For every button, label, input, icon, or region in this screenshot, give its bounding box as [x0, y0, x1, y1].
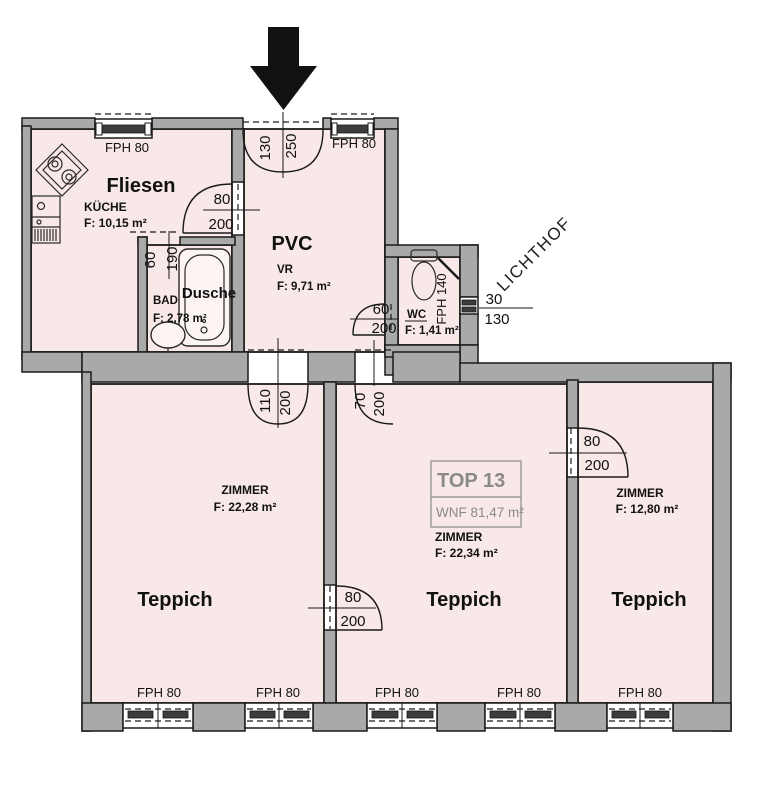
unit-number: TOP 13	[437, 470, 505, 492]
wall-bad-top-2	[180, 237, 235, 245]
vr-mid-door-dim-height: 200	[371, 391, 388, 416]
bottom-window-3	[367, 703, 437, 728]
lichthof-label: LICHTHOF	[493, 213, 575, 295]
window-radiator	[525, 711, 551, 718]
vr-left-door-dim-height: 200	[277, 390, 294, 415]
kueche-floor-label: Fliesen	[107, 175, 176, 197]
zimmer-right-floor: Teppich	[611, 589, 686, 611]
wall-bottom-pier-1	[82, 703, 123, 731]
window-radiator	[372, 711, 398, 718]
wc-name: WC	[407, 309, 426, 321]
wall-mid-right-2	[567, 477, 578, 703]
wc-window-bar	[462, 300, 476, 305]
kueche-window-cap	[96, 123, 102, 135]
wc-window-dim-width: 30	[486, 291, 503, 308]
entry-dim-height: 250	[283, 133, 300, 158]
vr-area: F: 9,71 m²	[277, 281, 331, 293]
vr-window-label: FPH 80	[332, 136, 376, 151]
kueche-window-label: FPH 80	[105, 140, 149, 155]
wall-bottom-pier-3	[313, 703, 367, 731]
wall-bottom-pier-6	[673, 703, 731, 731]
floorplan-canvas: TOP 13 WNF 81,47 m² FPH 80 FPH 80 Fliese…	[0, 0, 762, 790]
kueche-area: F: 10,15 m²	[84, 216, 147, 230]
wc-window-label: FPH 140	[434, 273, 449, 324]
wall-band-2	[308, 352, 355, 382]
zimmer-left-floor: Teppich	[137, 589, 212, 611]
wall-top-3	[323, 118, 331, 129]
left-mid-door-dim-height: 200	[340, 613, 365, 630]
floorplan-svg: TOP 13 WNF 81,47 m² FPH 80 FPH 80 Fliese…	[0, 0, 762, 790]
window-radiator	[645, 711, 669, 718]
wc-door-dim-width: 60	[373, 301, 390, 318]
mid-right-door-dim-height: 200	[584, 457, 609, 474]
mid-right-door-dim-width: 80	[584, 433, 601, 450]
zimmer-right-area: F: 12,80 m²	[616, 502, 679, 516]
bottom-window-2	[245, 703, 313, 728]
room-zimmer-left	[91, 384, 324, 703]
wall-mid-right-1	[567, 380, 578, 428]
bad-door-dim-width: 60	[142, 252, 159, 269]
vr-left-door-dim-width: 110	[257, 389, 274, 413]
wall-band-left	[22, 352, 82, 372]
window-radiator	[250, 711, 275, 718]
bottom-window-label-1: FPH 80	[137, 685, 181, 700]
vr-window-radiator	[337, 125, 368, 133]
wall-left-lower	[82, 372, 91, 731]
bottom-window-4	[485, 703, 555, 728]
bottom-window-5	[607, 703, 673, 728]
wall-bottom-pier-2	[193, 703, 245, 731]
wall-right-outer	[713, 363, 731, 731]
window-radiator	[490, 711, 516, 718]
wall-top-1	[22, 118, 95, 129]
vr-window-cap	[368, 123, 373, 135]
wc-door-dim-height: 200	[371, 320, 396, 337]
zimmer-mid-area: F: 22,34 m²	[435, 546, 498, 560]
wall-band-3	[393, 352, 460, 382]
wall-top-4	[374, 118, 398, 129]
vr-floor-label: PVC	[271, 233, 312, 255]
zimmer-mid-floor: Teppich	[426, 589, 501, 611]
wall-kueche-vr-1	[232, 129, 244, 182]
entry-dim-width: 130	[257, 135, 274, 160]
wall-wc-right-1	[460, 245, 478, 297]
vr-window-cap	[332, 123, 337, 135]
window-radiator	[612, 711, 636, 718]
entrance-arrow-icon	[250, 27, 317, 110]
bad-name: BAD	[153, 295, 178, 307]
zimmer-right-name: ZIMMER	[616, 486, 664, 500]
kueche-window-cap	[145, 123, 151, 135]
bottom-window-label-2: FPH 80	[256, 685, 300, 700]
kueche-door-dim-width: 80	[214, 191, 231, 208]
unit-wnf: WNF 81,47 m²	[436, 505, 524, 520]
wall-band-1	[82, 352, 248, 382]
kueche-name: KÜCHE	[84, 199, 127, 214]
window-radiator	[163, 711, 188, 718]
bottom-window-label-3: FPH 80	[375, 685, 419, 700]
wc-window-bar	[462, 307, 476, 312]
bottom-window-label-5: FPH 80	[618, 685, 662, 700]
wall-bottom-pier-5	[555, 703, 607, 731]
bottom-window-label-4: FPH 80	[497, 685, 541, 700]
wall-top-2	[152, 118, 243, 129]
kueche-door-dim-height: 200	[208, 216, 233, 233]
wall-wc-right-2	[460, 313, 478, 345]
wall-bottom-pier-4	[437, 703, 485, 731]
dusche-label: Dusche	[182, 285, 236, 302]
wc-window-dim-height: 130	[484, 311, 509, 328]
zimmer-mid-name: ZIMMER	[435, 530, 483, 544]
vr-name: VR	[277, 264, 294, 276]
wall-wc-right-3	[460, 345, 478, 365]
zimmer-left-name: ZIMMER	[221, 483, 269, 497]
wall-left-upper	[22, 126, 31, 360]
wall-left-mid-1	[324, 382, 336, 585]
window-radiator	[407, 711, 433, 718]
basin-bowl	[151, 322, 185, 348]
wall-lichthof-bottom	[460, 363, 731, 382]
wall-left-mid-2	[324, 630, 336, 703]
window-radiator	[128, 711, 153, 718]
window-radiator	[284, 711, 309, 718]
bad-door-dim-height: 190	[164, 246, 181, 271]
vr-mid-door-dim-width: 70	[352, 393, 369, 410]
wc-area: F: 1,41 m²	[405, 325, 459, 337]
left-mid-door-dim-width: 80	[345, 589, 362, 606]
zimmer-left-area: F: 22,28 m²	[214, 500, 277, 514]
bottom-window-1	[123, 703, 193, 728]
kueche-window-radiator	[102, 125, 145, 133]
bad-area: F: 2,78 m²	[153, 313, 207, 325]
